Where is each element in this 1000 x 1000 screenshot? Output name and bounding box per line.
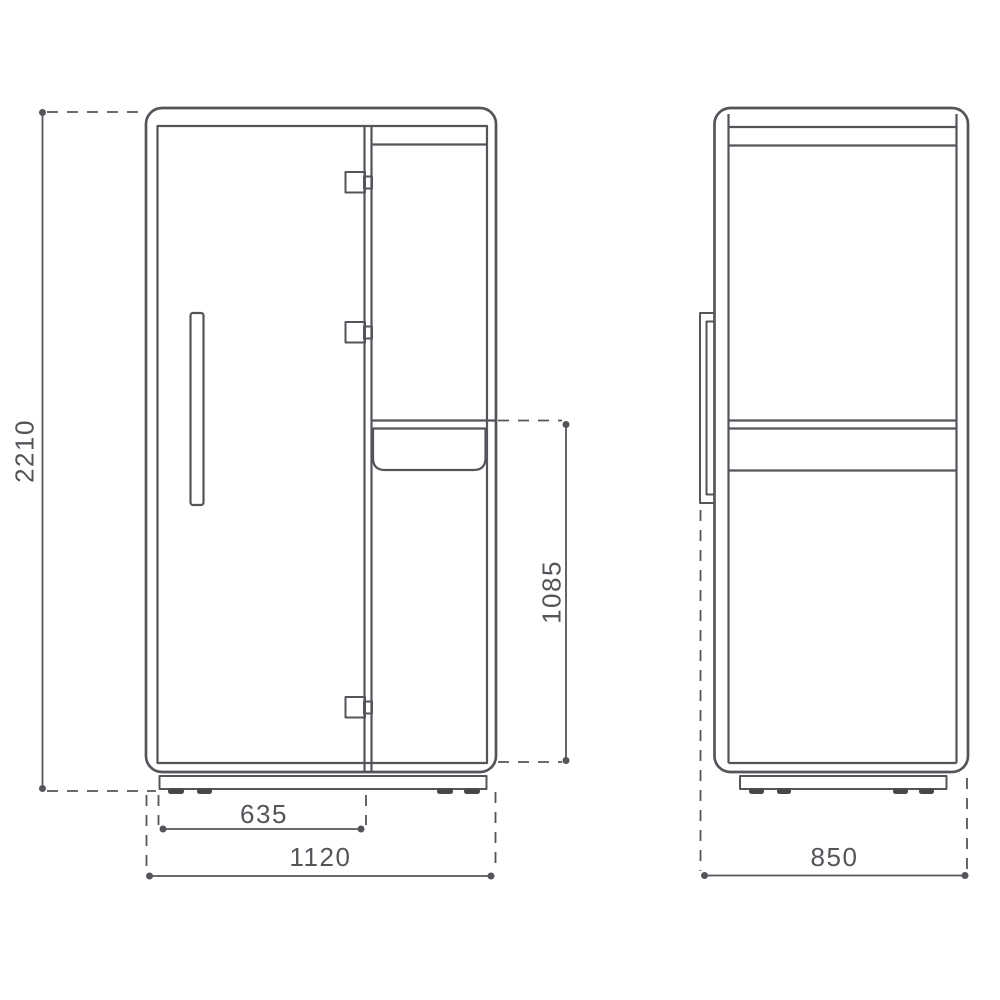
front-view	[146, 108, 496, 794]
side-view	[700, 108, 968, 794]
tabletop-surface	[373, 429, 486, 471]
side-handle-profile	[700, 313, 715, 503]
door-width-label: 635	[240, 799, 288, 829]
dimension-endpoint	[701, 872, 708, 879]
side-foot-3	[893, 789, 908, 795]
overall-height-label: 2210	[10, 419, 40, 483]
dimension-endpoint	[563, 757, 570, 764]
dimension-endpoint	[962, 872, 969, 879]
front-foot-2	[197, 789, 212, 795]
side-outer-frame	[715, 108, 969, 772]
side-foot-1	[749, 789, 764, 795]
front-inner-frame	[158, 126, 488, 763]
front-base-plinth	[160, 776, 487, 789]
front-outer-frame	[146, 108, 496, 772]
technical-drawing-page: 2210 1085 635 1120 850	[0, 0, 1000, 1000]
dimension-overall-depth: 850	[701, 510, 969, 879]
dimension-tabletop-height: 1085	[498, 421, 570, 765]
side-foot-2	[777, 789, 791, 795]
hinge-middle	[346, 322, 373, 343]
front-foot-4	[464, 789, 480, 795]
front-foot-3	[437, 789, 453, 795]
dimension-endpoint	[563, 421, 570, 428]
dimension-overall-height: 2210	[10, 109, 157, 792]
dimension-door-width: 635	[159, 795, 367, 833]
dimension-endpoint	[146, 873, 153, 880]
tabletop-height-label: 1085	[537, 560, 567, 624]
dimension-endpoint	[39, 785, 46, 792]
dimension-endpoint	[358, 826, 365, 833]
booth-dimension-drawing: 2210 1085 635 1120 850	[0, 0, 1000, 1000]
overall-width-label: 1120	[290, 842, 352, 872]
hinge-bottom	[346, 697, 373, 718]
dimension-endpoint	[39, 109, 46, 116]
dimension-endpoint	[160, 826, 167, 833]
overall-depth-label: 850	[811, 842, 859, 872]
side-base-plinth	[740, 776, 947, 789]
dimension-overall-width: 1120	[146, 792, 496, 880]
door-handle	[191, 313, 204, 505]
side-foot-4	[919, 789, 934, 795]
hinge-top	[346, 172, 373, 193]
front-foot-1	[168, 789, 184, 795]
dimension-endpoint	[488, 873, 495, 880]
